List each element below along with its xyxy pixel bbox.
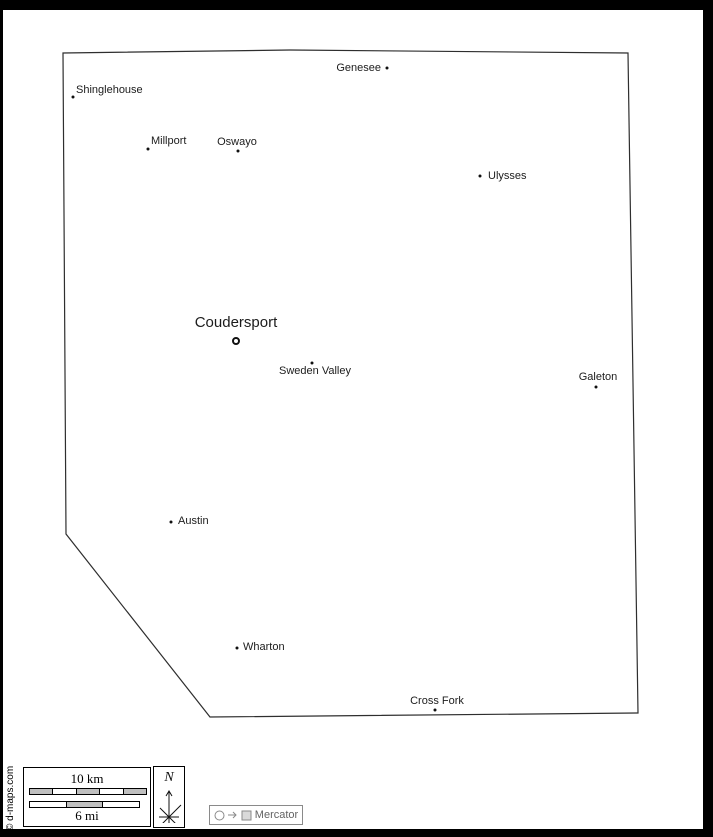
town-label: Wharton [243,641,285,653]
scale-bar-box: 10 km 6 mi [23,767,151,827]
town-label: Shinglehouse [76,84,143,96]
scale-segment [124,789,146,794]
town-dot [595,386,598,389]
credit-text: © d-maps.com [5,766,16,831]
scale-mi-label: 6 mi [24,808,150,824]
scale-segment [30,802,67,807]
scale-segment [53,789,76,794]
map-page: GeneseeShinglehouseMillportOswayoUlysses… [0,0,713,837]
north-arrow-box: N [153,766,185,828]
compass-arrow-icon [155,787,183,823]
town-dot [434,709,437,712]
town-label: Millport [151,135,186,147]
scale-segment [103,802,139,807]
projection-legend: Mercator [209,805,303,825]
town-dot [72,96,75,99]
square-icon [241,810,252,821]
frame-bottom [0,829,713,837]
town-label: Galeton [579,371,618,383]
town-dot [236,647,239,650]
county-boundary-map [0,0,713,837]
projection-label: Mercator [255,809,298,821]
frame-right [703,0,713,837]
town-label: Sweden Valley [279,365,351,377]
town-label: Cross Fork [410,695,464,707]
town-dot [237,150,240,153]
scale-segment [100,789,123,794]
town-dot [170,521,173,524]
scale-segment [77,789,100,794]
scale-segment [30,789,53,794]
town-label: Austin [178,515,209,527]
arrow-right-icon [228,810,238,820]
town-dot [386,67,389,70]
frame-top [0,0,713,10]
town-label: Genesee [336,62,381,74]
county-outline [63,50,638,717]
scale-km-label: 10 km [24,771,150,787]
county-seat-marker [232,337,240,345]
north-letter: N [154,770,184,786]
town-label: Oswayo [217,136,257,148]
scale-bar-km [29,788,147,795]
scale-segment [67,802,104,807]
town-dot [147,148,150,151]
frame-left [0,0,3,837]
circle-icon [214,810,225,821]
town-label: Coudersport [195,315,278,331]
town-label: Ulysses [488,170,527,182]
scale-bar-mi [29,801,140,808]
town-dot [479,175,482,178]
